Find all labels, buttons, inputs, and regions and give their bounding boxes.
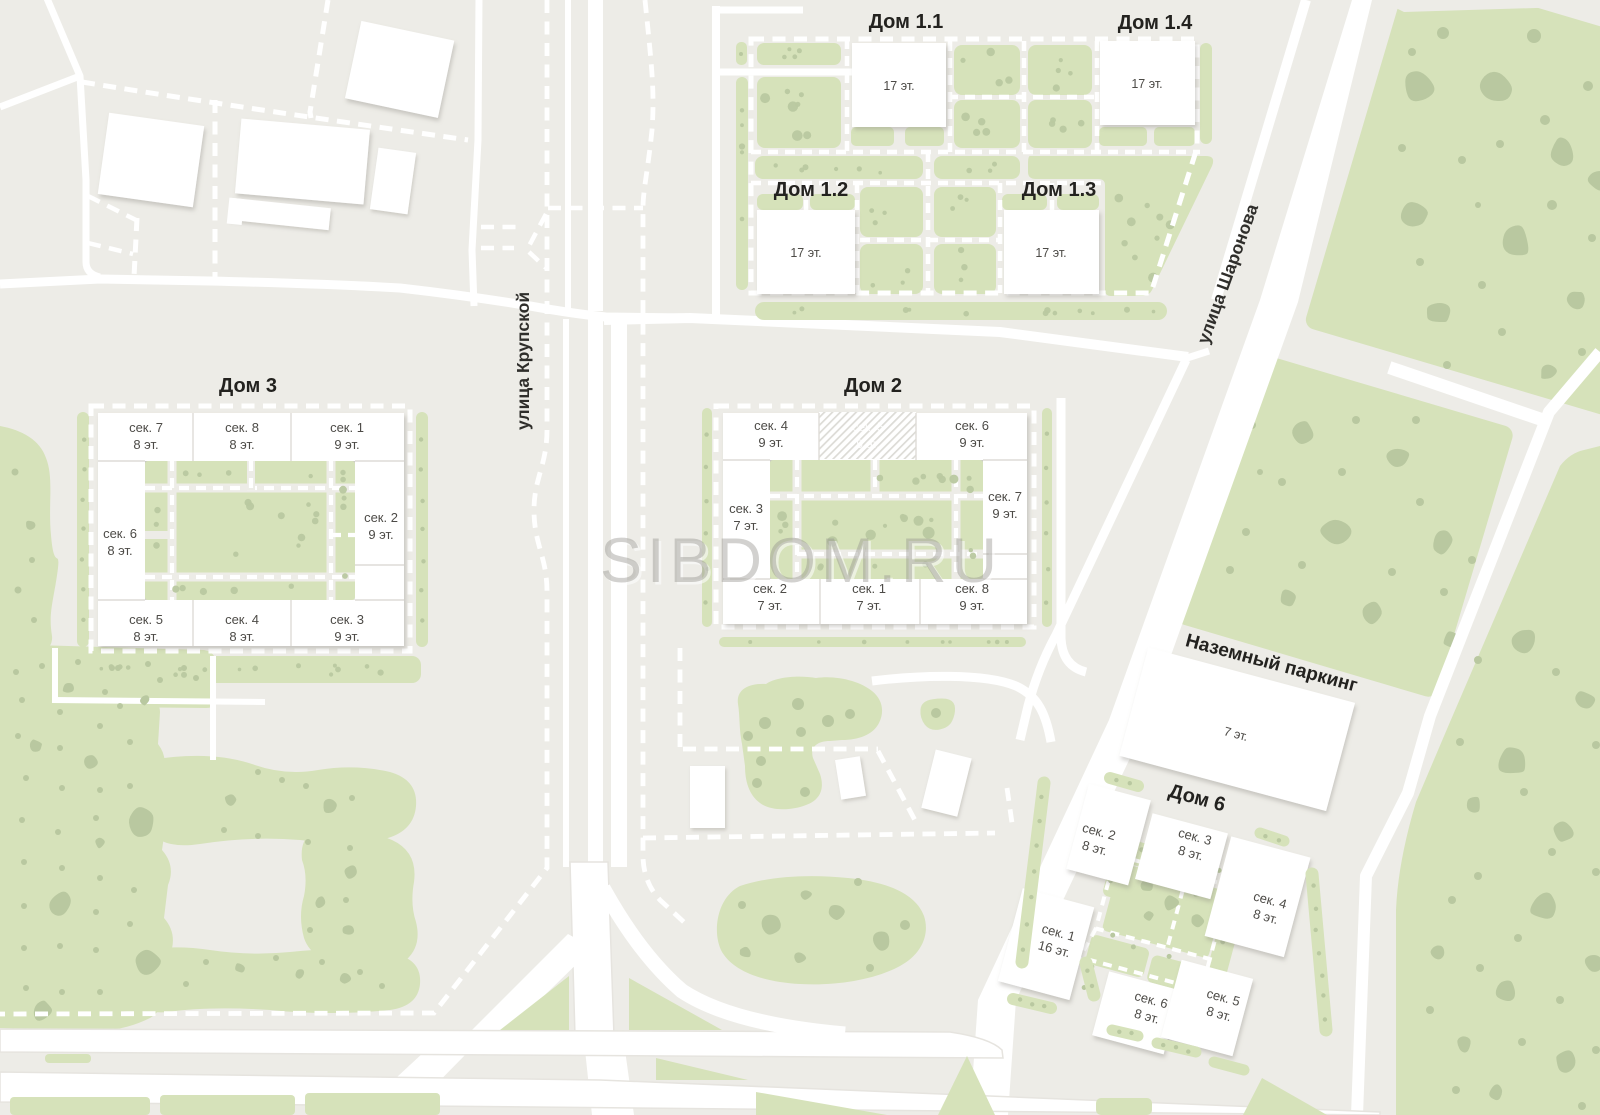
svg-text:7 эт.: 7 эт. xyxy=(856,598,881,613)
svg-text:9 эт.: 9 эт. xyxy=(856,437,879,451)
svg-text:улица Крупской: улица Крупской xyxy=(513,292,533,430)
svg-text:8 эт.: 8 эт. xyxy=(229,437,254,452)
svg-text:9 эт.: 9 эт. xyxy=(334,437,359,452)
svg-text:Дом 1.2: Дом 1.2 xyxy=(774,179,849,201)
svg-text:9 эт.: 9 эт. xyxy=(368,527,393,542)
svg-text:Дом 3: Дом 3 xyxy=(219,375,277,397)
svg-text:8 эт.: 8 эт. xyxy=(229,629,254,644)
svg-text:8 эт.: 8 эт. xyxy=(133,629,158,644)
svg-text:сек. 6: сек. 6 xyxy=(955,418,989,433)
svg-text:сек. 1: сек. 1 xyxy=(330,420,364,435)
svg-text:8 эт.: 8 эт. xyxy=(133,437,158,452)
svg-text:SIBDOM.RU: SIBDOM.RU xyxy=(600,526,1002,596)
svg-text:сек. 6: сек. 6 xyxy=(103,526,137,541)
svg-text:сек. 4: сек. 4 xyxy=(225,612,259,627)
svg-text:сек. 8: сек. 8 xyxy=(225,420,259,435)
svg-text:9 эт.: 9 эт. xyxy=(758,435,783,450)
svg-text:17 эт.: 17 эт. xyxy=(1035,246,1066,260)
svg-text:сек. 5: сек. 5 xyxy=(852,420,884,434)
svg-text:Дом 1.1: Дом 1.1 xyxy=(869,11,944,33)
svg-text:сек. 4: сек. 4 xyxy=(754,418,788,433)
svg-text:сек. 3: сек. 3 xyxy=(729,501,763,516)
svg-text:сек. 5: сек. 5 xyxy=(129,612,163,627)
svg-text:17 эт.: 17 эт. xyxy=(1131,77,1162,91)
svg-text:9 эт.: 9 эт. xyxy=(959,435,984,450)
svg-text:9 эт.: 9 эт. xyxy=(334,629,359,644)
svg-text:9 эт.: 9 эт. xyxy=(992,506,1017,521)
svg-text:Дом 2: Дом 2 xyxy=(844,375,902,397)
svg-text:сек. 7: сек. 7 xyxy=(129,420,163,435)
svg-text:17 эт.: 17 эт. xyxy=(883,79,914,93)
svg-text:7 эт.: 7 эт. xyxy=(757,598,782,613)
svg-text:сек. 2: сек. 2 xyxy=(364,510,398,525)
svg-text:9 эт.: 9 эт. xyxy=(959,598,984,613)
svg-text:сек. 7: сек. 7 xyxy=(988,489,1022,504)
svg-text:8 эт.: 8 эт. xyxy=(107,543,132,558)
svg-text:Дом 1.3: Дом 1.3 xyxy=(1022,179,1097,201)
svg-text:17 эт.: 17 эт. xyxy=(790,246,821,260)
svg-text:Дом 1.4: Дом 1.4 xyxy=(1118,12,1193,34)
svg-text:сек. 3: сек. 3 xyxy=(330,612,364,627)
